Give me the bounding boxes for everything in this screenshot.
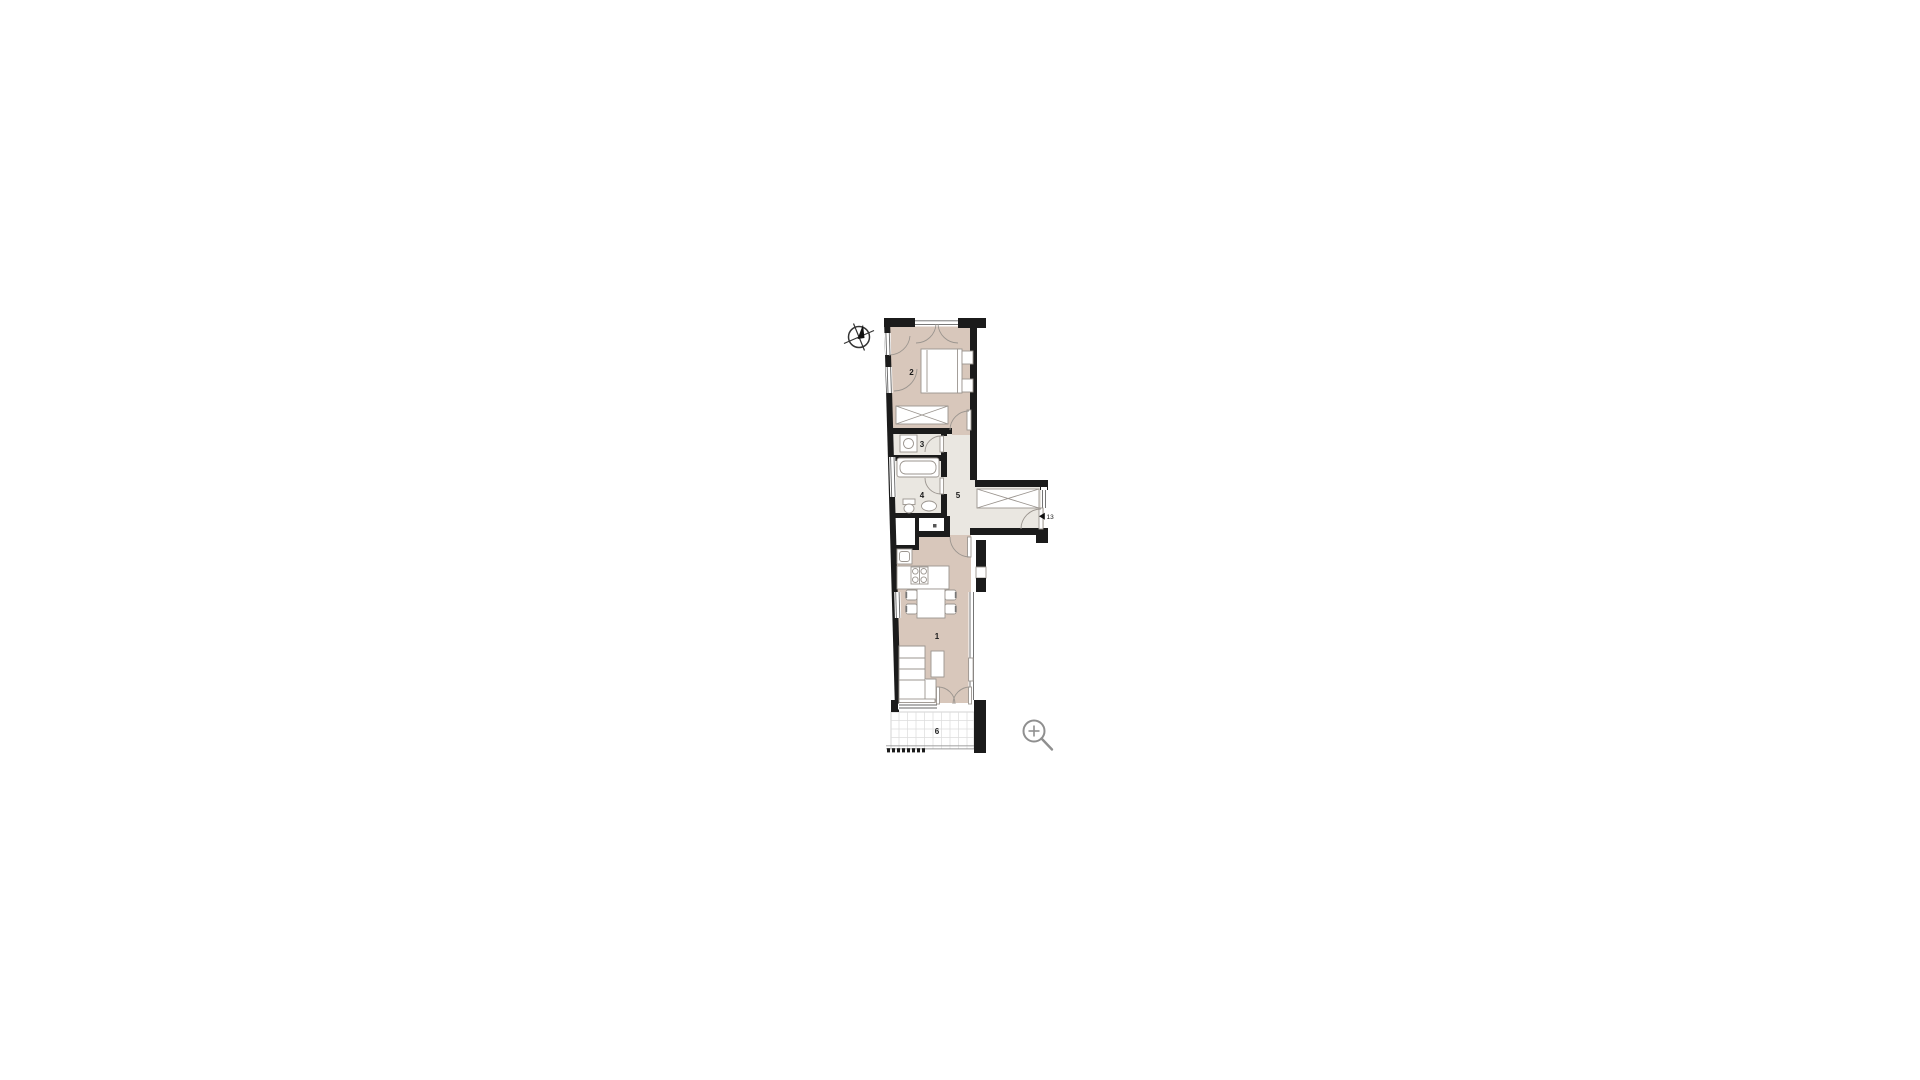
bed xyxy=(921,349,962,393)
room-label-4: 4 xyxy=(920,491,925,500)
room-label-6: 6 xyxy=(935,727,940,736)
coffee-table xyxy=(931,651,944,677)
terrace xyxy=(886,712,974,752)
room-label-1: 1 xyxy=(935,632,940,641)
bathroom-sink xyxy=(922,501,937,511)
nightstand xyxy=(962,379,973,392)
floor-plan: 2 3 4 5 1 6 13 xyxy=(840,300,1070,770)
kitchen-counter xyxy=(897,566,949,589)
entry-wardrobe xyxy=(977,489,1039,508)
room-label-3: 3 xyxy=(920,440,925,449)
closet-b-floor xyxy=(921,518,944,532)
hall-floor xyxy=(947,431,970,537)
entry-door-number: 13 xyxy=(1047,514,1055,521)
nightstand xyxy=(962,351,973,364)
headboard xyxy=(958,349,963,393)
compass-icon xyxy=(844,324,874,351)
zoom-in-icon[interactable] xyxy=(1024,721,1053,750)
shaft-niche xyxy=(976,567,986,578)
kitchen-sink xyxy=(897,549,912,564)
toilet xyxy=(903,499,915,513)
room-label-5: 5 xyxy=(956,491,961,500)
washing-machine xyxy=(900,435,917,452)
bathtub xyxy=(897,458,939,477)
page-background: { "page": { "background_color": "#ffffff… xyxy=(0,0,1920,1080)
radiator xyxy=(969,658,974,681)
room-label-2: 2 xyxy=(909,368,914,377)
radiator xyxy=(899,699,935,703)
closet-fixture xyxy=(933,524,937,528)
dining-table xyxy=(917,589,945,618)
bedroom-wardrobe xyxy=(896,406,948,424)
